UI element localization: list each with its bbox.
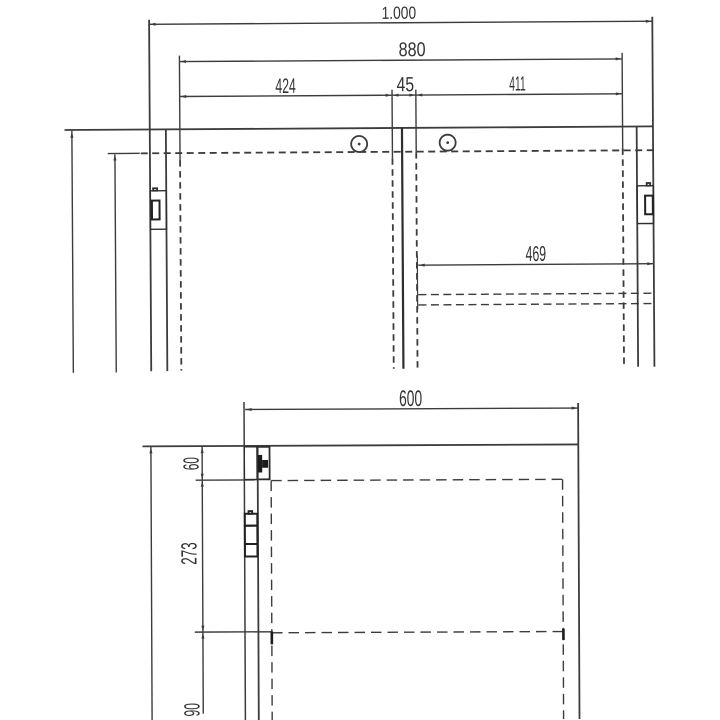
svg-text:469: 469 bbox=[526, 242, 547, 266]
svg-text:60: 60 bbox=[179, 457, 204, 470]
svg-text:600: 600 bbox=[399, 386, 422, 411]
svg-text:273: 273 bbox=[176, 542, 201, 565]
svg-text:90: 90 bbox=[179, 703, 204, 717]
svg-text:880: 880 bbox=[399, 39, 426, 61]
svg-text:411: 411 bbox=[509, 72, 526, 95]
svg-text:1.000: 1.000 bbox=[382, 3, 417, 23]
svg-text:424: 424 bbox=[275, 75, 296, 98]
svg-text:45: 45 bbox=[396, 73, 414, 96]
